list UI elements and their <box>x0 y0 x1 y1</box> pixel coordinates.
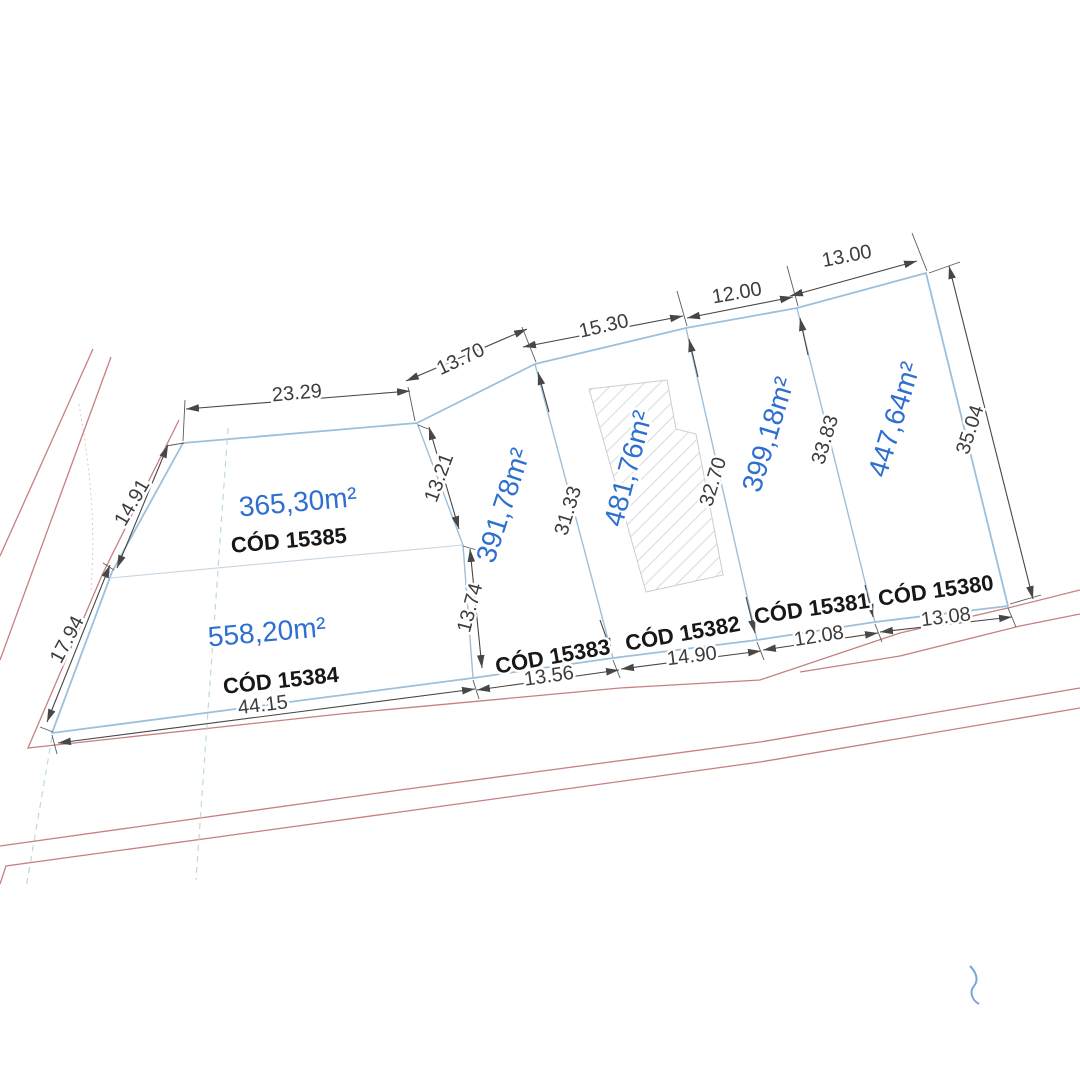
dim-label-13-00: 13.00 <box>820 241 873 272</box>
utility-dashed-line-2 <box>26 737 52 888</box>
dim-label-13-70: 13.70 <box>433 339 488 380</box>
ext-tick <box>408 387 415 421</box>
ext-tick <box>929 262 960 273</box>
ext-tick <box>1010 595 1041 604</box>
ext-tick <box>787 266 798 306</box>
dim-label-23-29: 23.29 <box>271 380 323 406</box>
ext-tick <box>613 660 620 678</box>
scan-mark <box>970 966 979 1004</box>
road-left-curve-line <box>79 404 93 590</box>
survey-plan-page: 23.29 13.70 15.30 12.00 13.00 35.04 14.9… <box>0 0 1080 1080</box>
ext-tick <box>677 291 687 326</box>
ext-tick <box>912 233 927 271</box>
road-left-inner-line <box>0 357 111 660</box>
ext-tick <box>183 400 185 441</box>
road-bottom-lower-line <box>0 708 1080 884</box>
subdivision-plan-svg: 23.29 13.70 15.30 12.00 13.00 35.04 14.9… <box>0 0 1080 1080</box>
road-left-outer-line <box>0 349 93 556</box>
ext-tick <box>40 727 53 732</box>
dim-label-13-08: 13.08 <box>920 603 972 631</box>
dim-label-15-30: 15.30 <box>577 310 631 343</box>
